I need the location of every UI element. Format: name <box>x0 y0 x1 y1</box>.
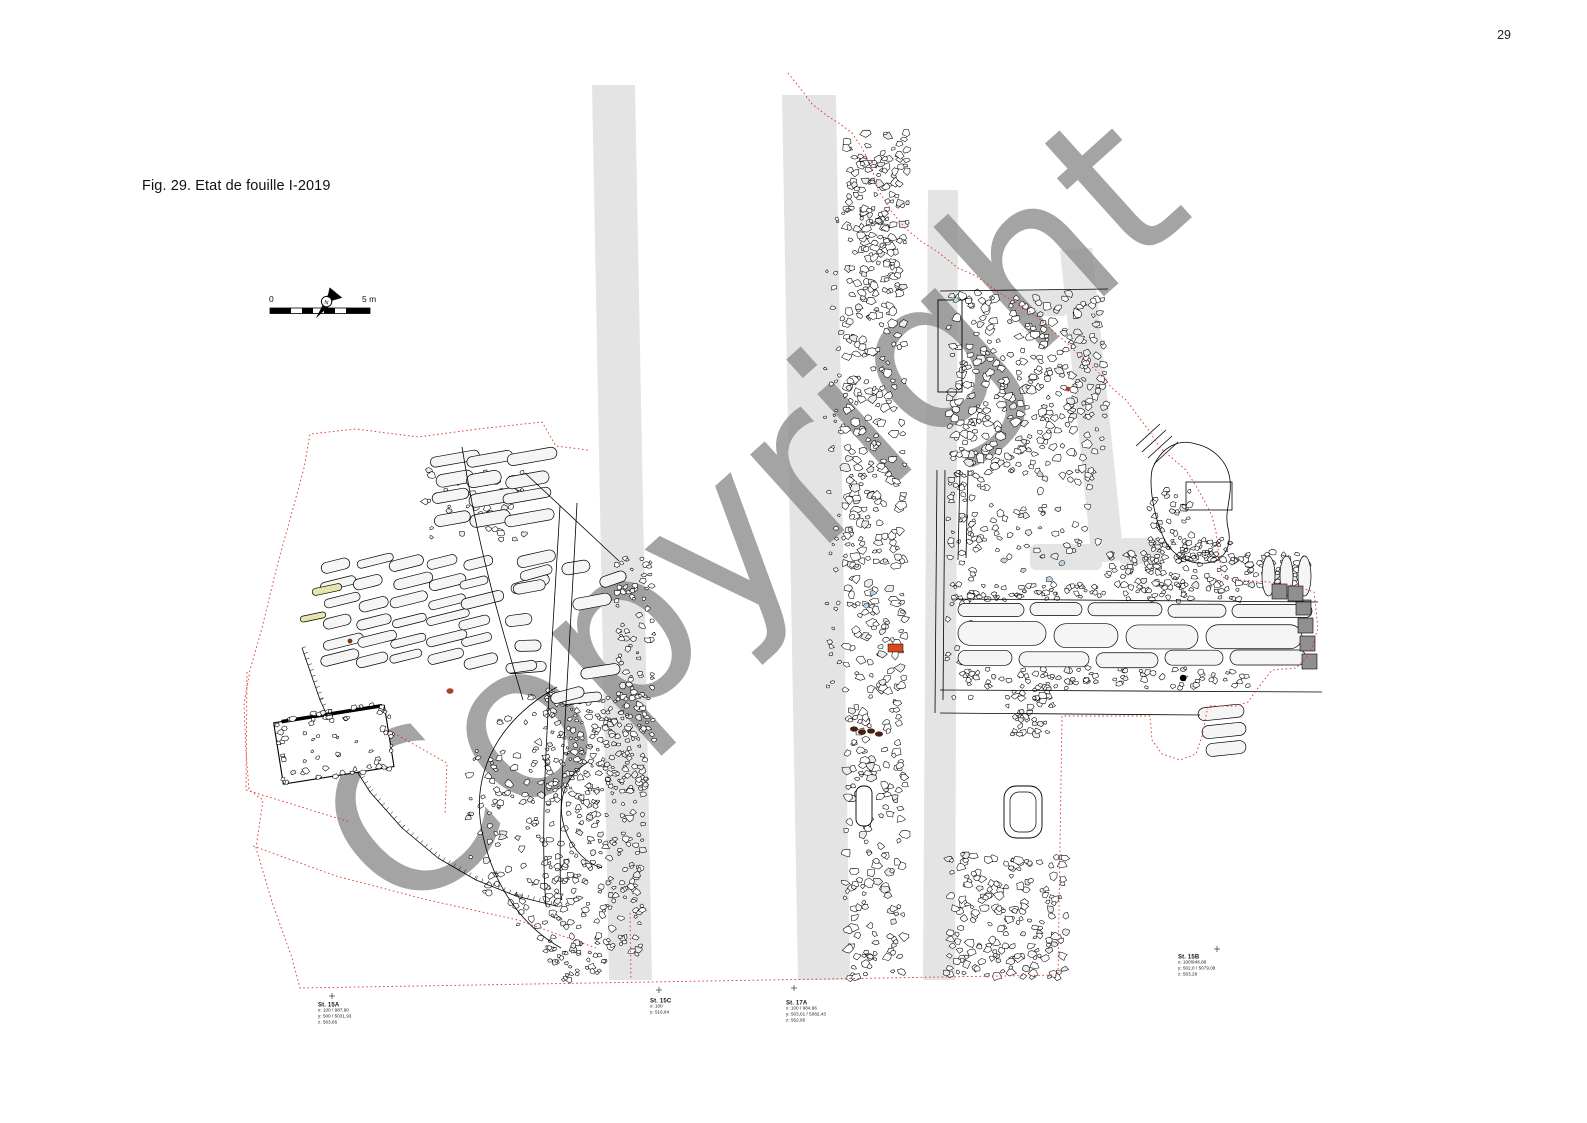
survey-crosses <box>329 946 1220 999</box>
scale-label-zero: 0 <box>269 294 274 304</box>
station-line: z: 563,28 <box>1178 972 1215 978</box>
station-label-15c: St. 15C x: 100 y: 516,84 <box>650 997 671 1016</box>
station-id: St. 15C <box>650 997 671 1005</box>
excavation-plan-drawing: Copyright 0 5 m N <box>0 0 1587 1123</box>
station-id: St. 15A <box>318 1001 351 1009</box>
station-label-15b: St. 15B x: 100/948,88 y: 502,0 / 5079,08… <box>1178 953 1215 978</box>
station-label-15a: St. 15A x: 100 / 987,90 y: 500 / 5031,93… <box>318 1001 351 1026</box>
station-line: z: 562,96 <box>786 1018 826 1024</box>
scale-label-5m: 5 m <box>362 294 376 304</box>
station-line: z: 563,66 <box>318 1020 351 1026</box>
station-line: y: 516,84 <box>650 1011 671 1017</box>
watermark-text: Copyright <box>270 64 1231 965</box>
station-id: St. 15B <box>1178 953 1215 961</box>
document-page: 29 Fig. 29. Etat de fouille I-2019 Copyr… <box>0 0 1587 1123</box>
north-arrow-icon: N <box>316 286 344 323</box>
station-id: St. 17A <box>786 999 826 1007</box>
station-label-17a: St. 17A x: 100 / 984,96 y: 503,01 / 5082… <box>786 999 826 1024</box>
